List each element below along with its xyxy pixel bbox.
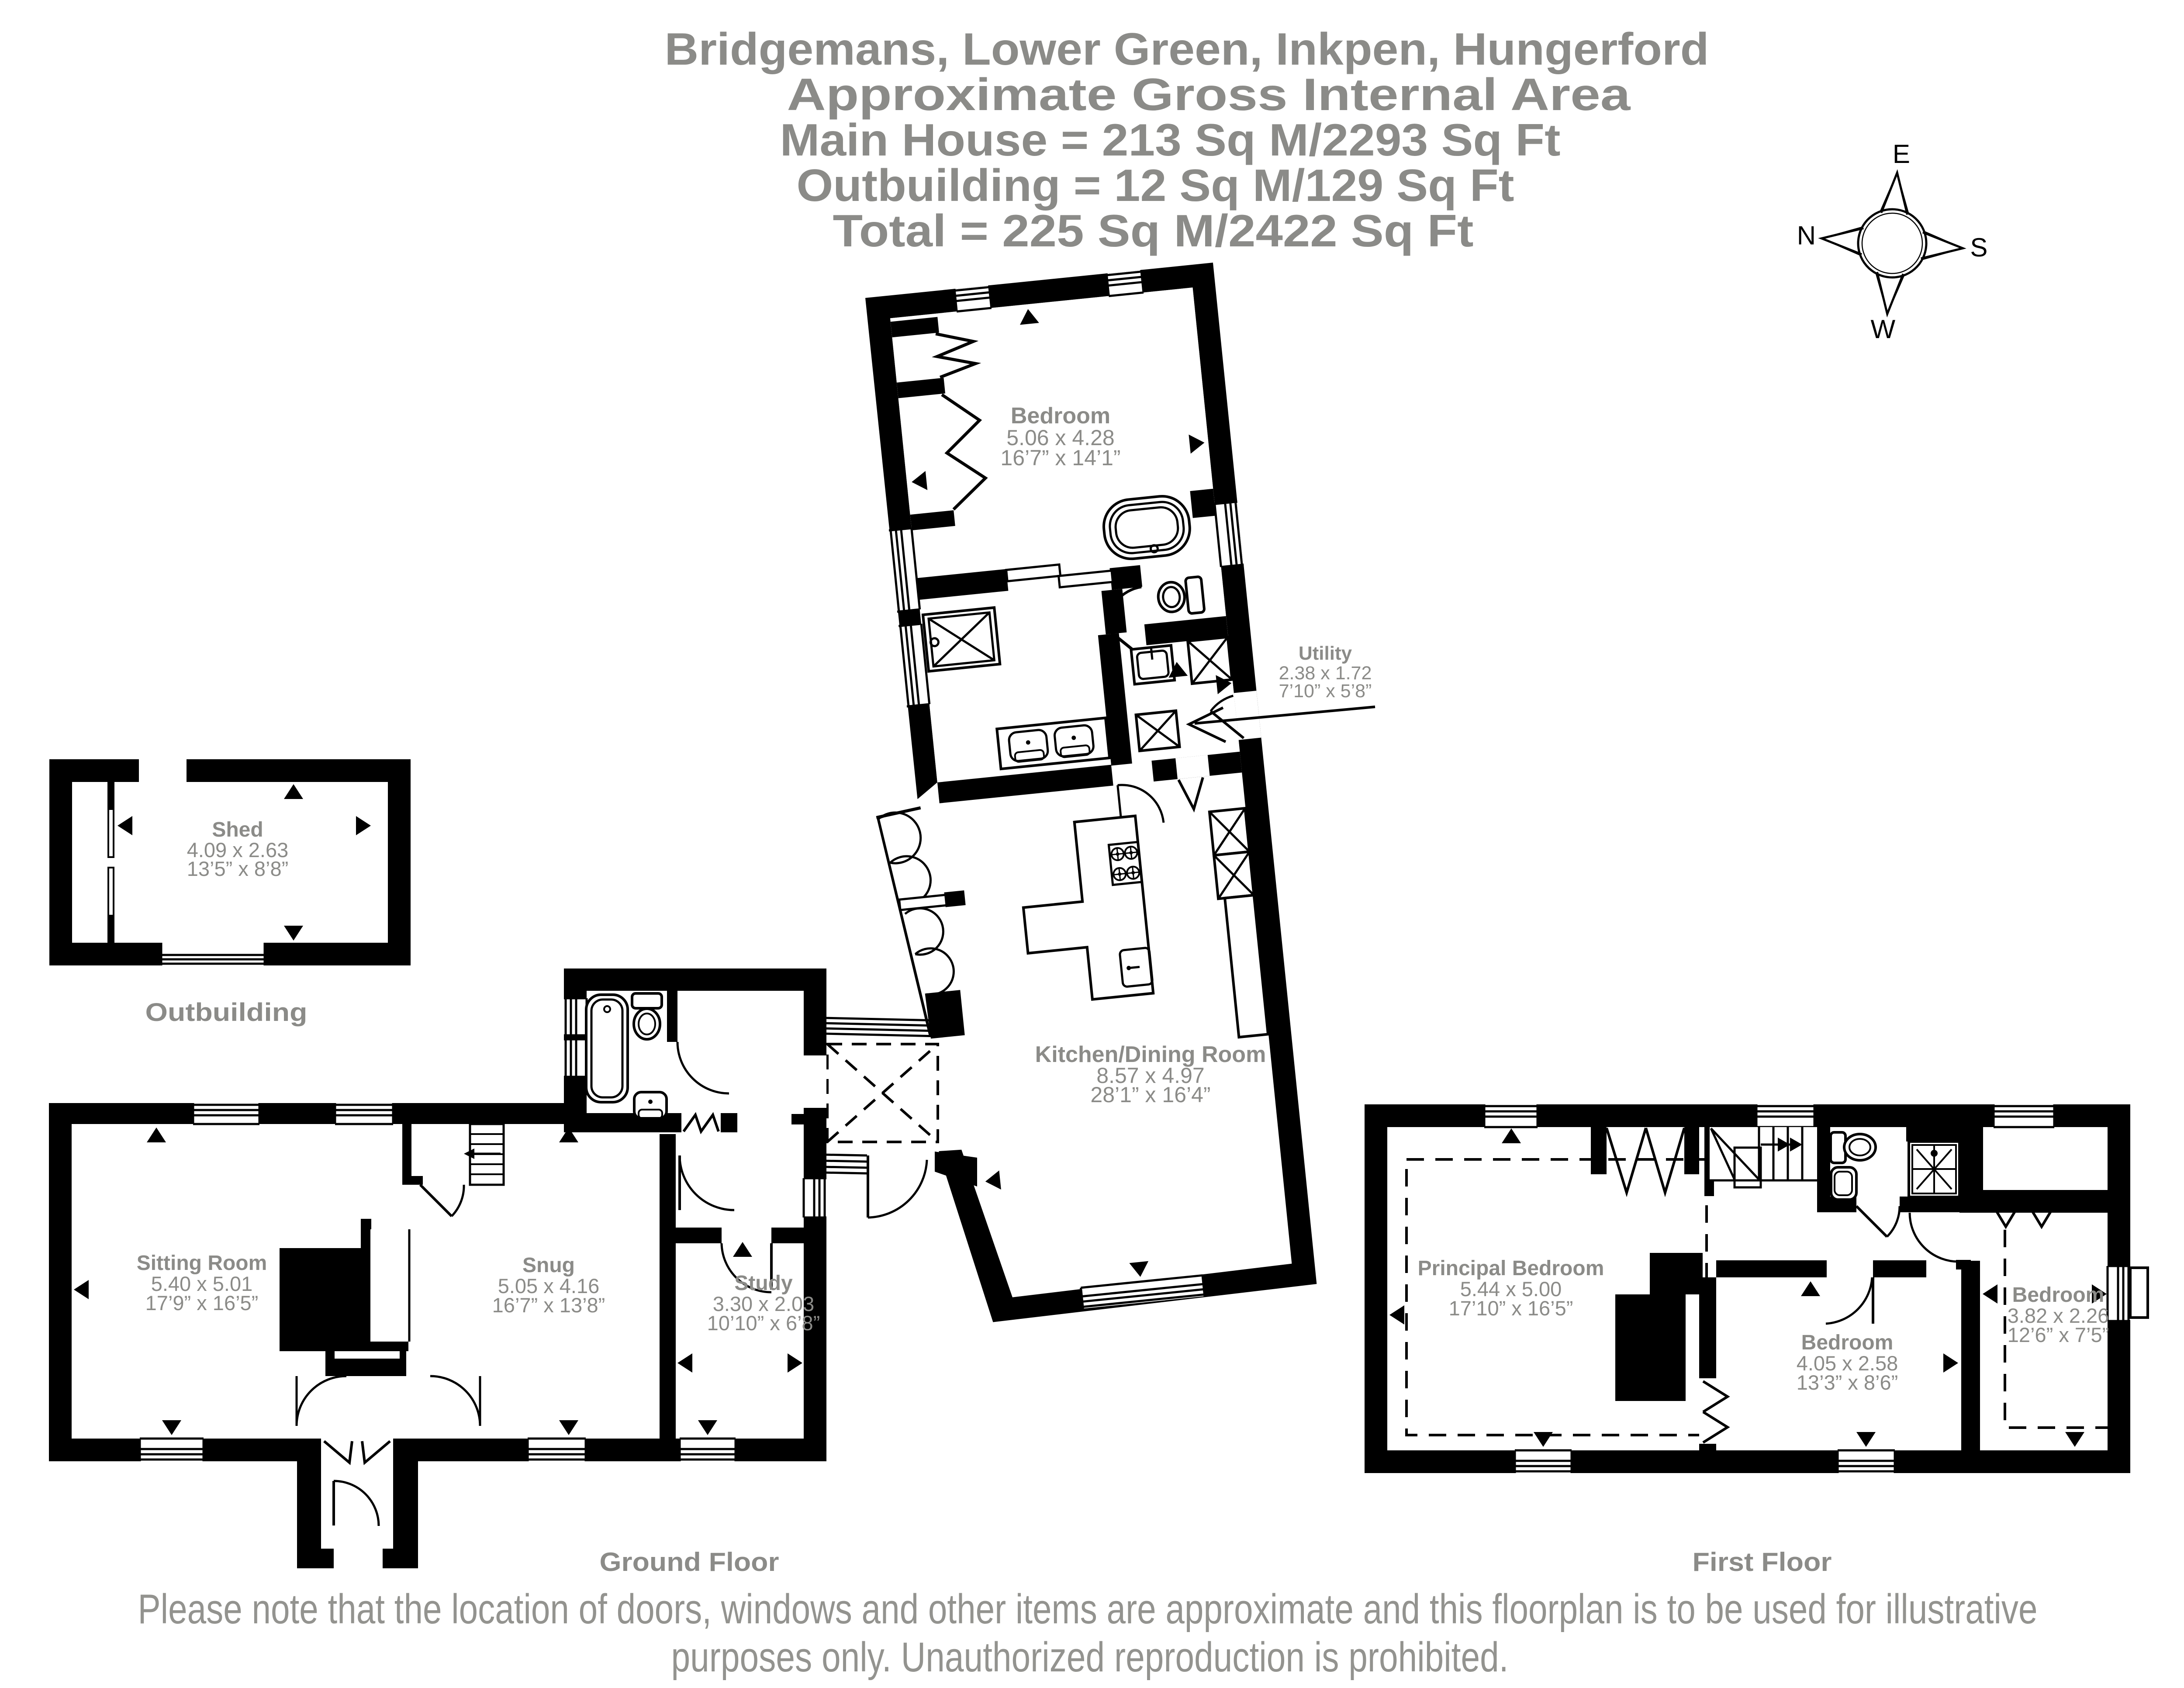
svg-text:S: S — [1970, 233, 1987, 262]
svg-text:Main House = 213 Sq M/2293 Sq: Main House = 213 Sq M/2293 Sq Ft — [780, 115, 1561, 166]
svg-text:Snug: Snug — [522, 1254, 575, 1277]
svg-text:Approximate Gross Internal Are: Approximate Gross Internal Area — [787, 69, 1631, 120]
svg-text:Bedroom: Bedroom — [1011, 403, 1110, 429]
svg-text:10’10” x 6’8”: 10’10” x 6’8” — [707, 1311, 820, 1335]
svg-text:Sitting Room: Sitting Room — [137, 1252, 267, 1275]
svg-text:Outbuilding = 12 Sq M/129 Sq F: Outbuilding = 12 Sq M/129 Sq Ft — [797, 160, 1514, 211]
svg-text:Bedroom: Bedroom — [2012, 1283, 2105, 1307]
svg-text:Bedroom: Bedroom — [1801, 1331, 1894, 1354]
svg-text:Principal Bedroom: Principal Bedroom — [1418, 1257, 1604, 1280]
svg-text:16’7” x 13’8”: 16’7” x 13’8” — [492, 1294, 605, 1317]
svg-text:7’10” x 5’8”: 7’10” x 5’8” — [1279, 681, 1372, 702]
svg-text:17’10” x 16’5”: 17’10” x 16’5” — [1449, 1297, 1573, 1320]
svg-text:13’3” x 8’6”: 13’3” x 8’6” — [1797, 1371, 1898, 1394]
svg-text:12’6” x 7’5”: 12’6” x 7’5” — [2008, 1323, 2109, 1346]
svg-text:Bridgemans, Lower Green, Inkpe: Bridgemans, Lower Green, Inkpen, Hungerf… — [665, 24, 1709, 75]
svg-text:13’5” x 8’8”: 13’5” x 8’8” — [187, 857, 289, 880]
svg-text:W: W — [1870, 315, 1895, 344]
svg-text:Total = 225 Sq M/2422 Sq Ft: Total = 225 Sq M/2422 Sq Ft — [833, 206, 1474, 256]
svg-text:E: E — [1893, 139, 1910, 169]
svg-text:16’7” x 14’1”: 16’7” x 14’1” — [1000, 446, 1120, 470]
svg-text:First Floor: First Floor — [1693, 1547, 1832, 1577]
svg-text:N: N — [1797, 221, 1816, 250]
svg-text:Ground Floor: Ground Floor — [600, 1547, 779, 1577]
svg-text:Please note that the location: Please note that the location of doors, … — [138, 1586, 2038, 1633]
svg-text:Outbuilding: Outbuilding — [145, 998, 308, 1027]
svg-text:17’9” x 16’5”: 17’9” x 16’5” — [145, 1291, 259, 1314]
svg-text:Study: Study — [734, 1272, 793, 1295]
svg-text:purposes only. Unauthorized re: purposes only. Unauthorized reproduction… — [671, 1634, 1509, 1681]
svg-text:Utility: Utility — [1299, 643, 1352, 664]
svg-text:28’1” x 16’4”: 28’1” x 16’4” — [1090, 1083, 1210, 1107]
